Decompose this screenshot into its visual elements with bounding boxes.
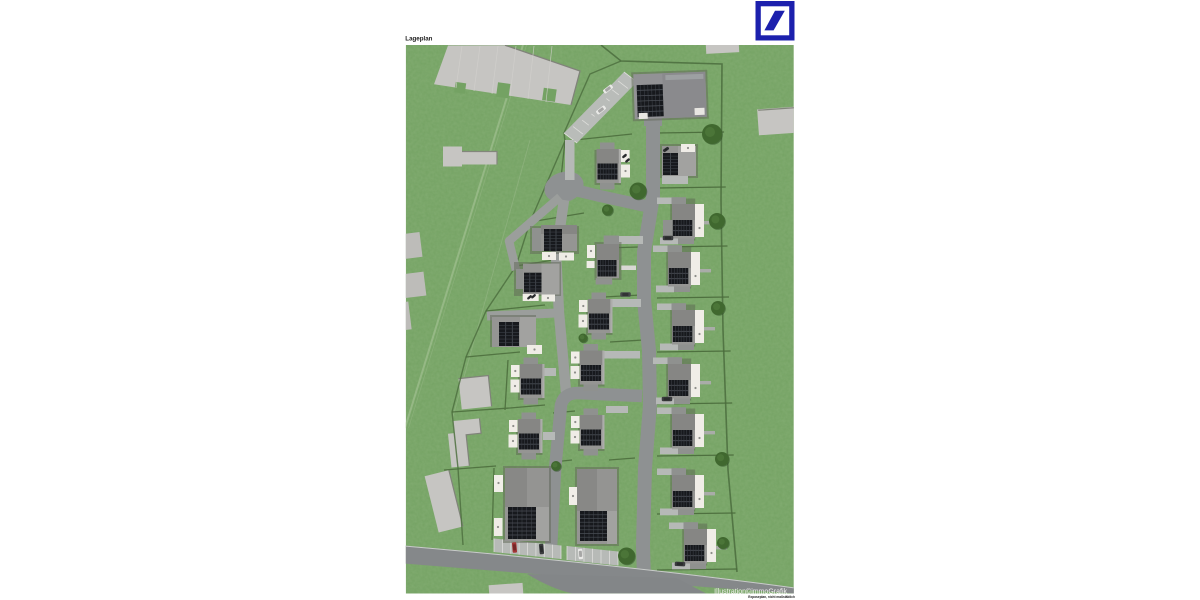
svg-text:Lageplan: Lageplan bbox=[405, 35, 432, 42]
svg-text:Exposeplan, nicht maßstäblich: Exposeplan, nicht maßstäblich bbox=[748, 595, 795, 599]
